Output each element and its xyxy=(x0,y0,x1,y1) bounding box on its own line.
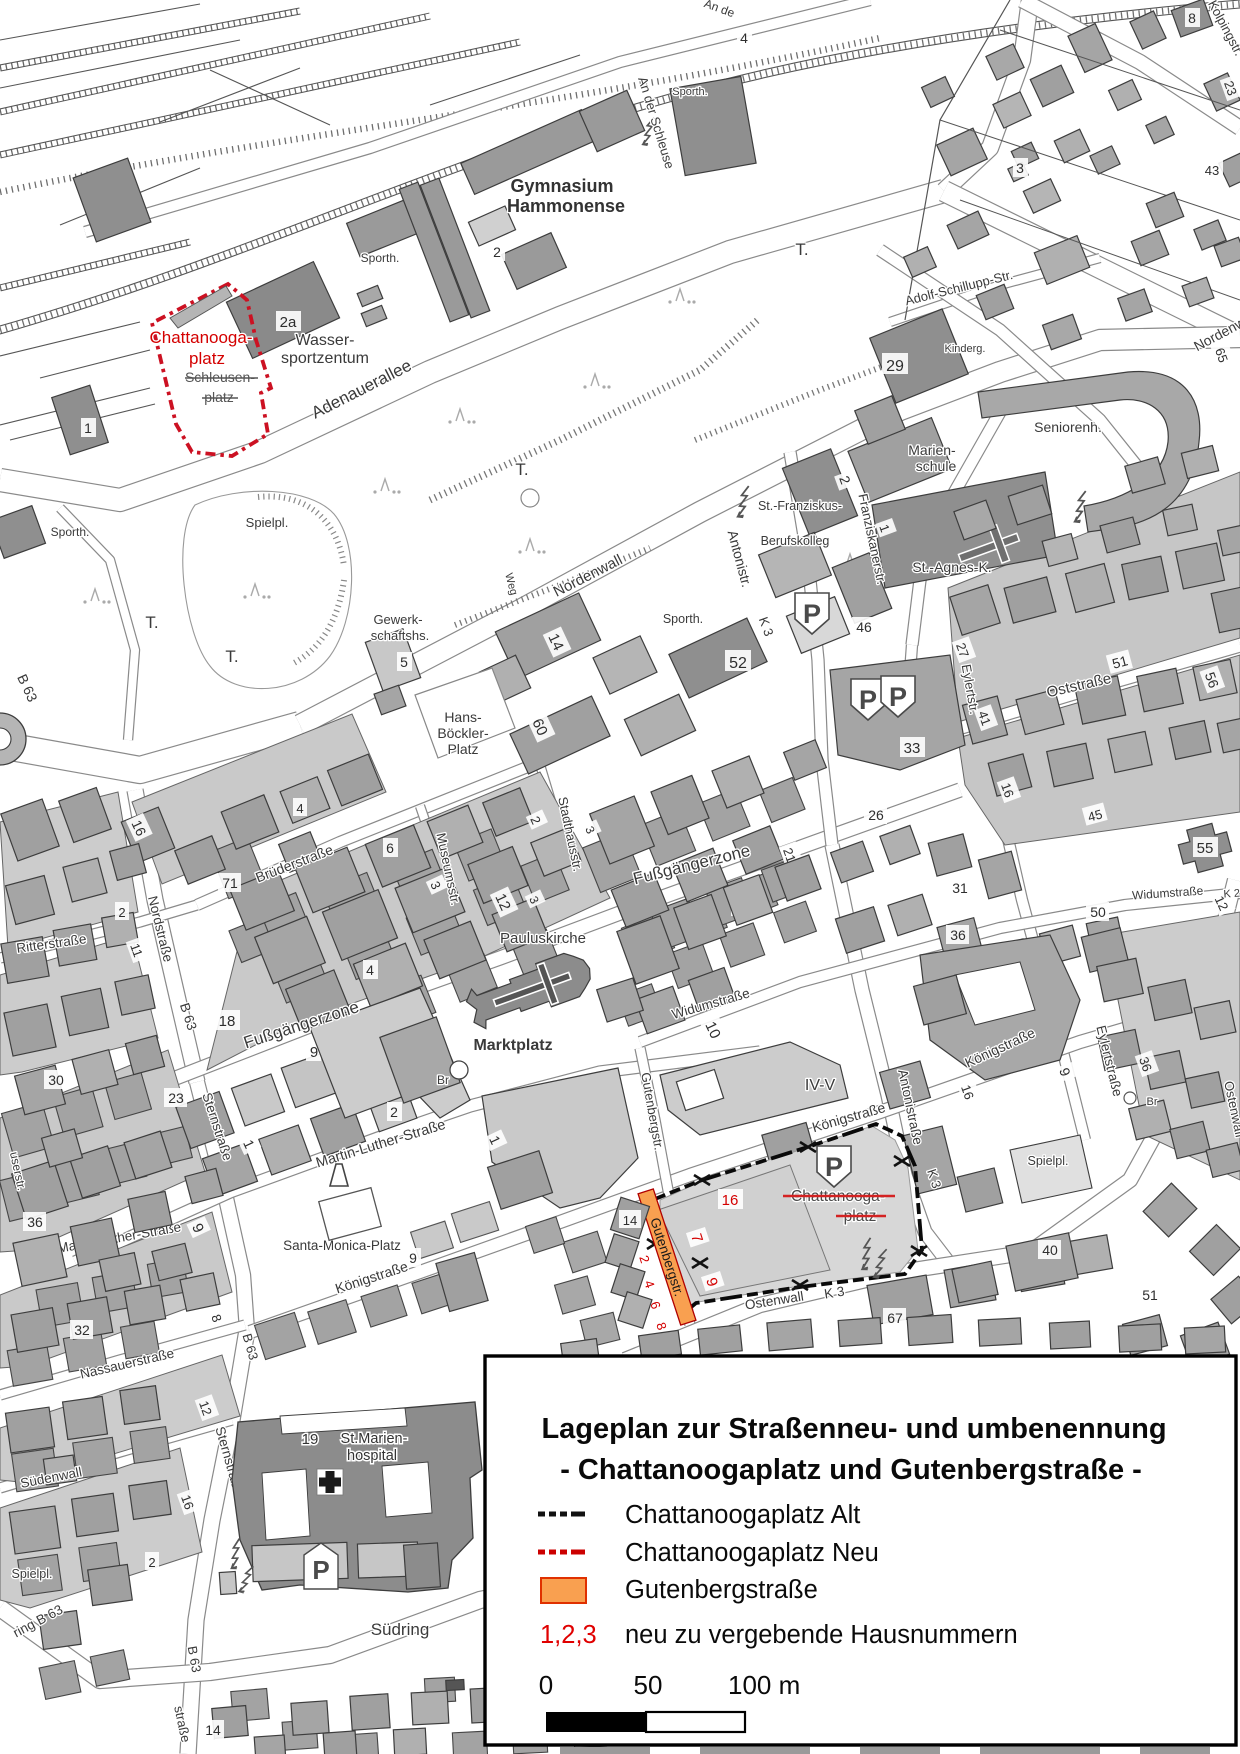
svg-text:52: 52 xyxy=(729,655,747,672)
svg-text:4: 4 xyxy=(366,962,374,978)
svg-text:67: 67 xyxy=(887,1310,903,1326)
svg-text:16: 16 xyxy=(722,1192,739,1209)
svg-text:50: 50 xyxy=(1090,904,1106,920)
svg-text:schaftshs.: schaftshs. xyxy=(371,628,430,643)
svg-text:2: 2 xyxy=(118,905,125,920)
svg-text:31: 31 xyxy=(952,880,968,896)
svg-text:K 3: K 3 xyxy=(823,1284,845,1302)
svg-text:T.: T. xyxy=(225,647,238,666)
svg-text:2a: 2a xyxy=(280,314,297,331)
svg-text:51: 51 xyxy=(1142,1287,1158,1303)
svg-text:9: 9 xyxy=(409,1250,417,1266)
svg-text:30: 30 xyxy=(48,1072,64,1088)
svg-text:P: P xyxy=(803,599,821,629)
svg-text:Seniorenh.: Seniorenh. xyxy=(1034,419,1102,435)
svg-text:1,2,3: 1,2,3 xyxy=(540,1621,597,1649)
svg-text:32: 32 xyxy=(74,1322,90,1338)
svg-text:neu zu vergebende Hausnummern: neu zu vergebende Hausnummern xyxy=(625,1621,1018,1649)
svg-text:4: 4 xyxy=(740,30,748,46)
svg-text:Br: Br xyxy=(437,1073,449,1087)
svg-text:IV-V: IV-V xyxy=(805,1077,836,1094)
svg-text:- Chattanoogaplatz und Gutenbe: - Chattanoogaplatz und Gutenbergstraße - xyxy=(560,1454,1142,1486)
svg-text:Lageplan zur Straßenneu- und u: Lageplan zur Straßenneu- und umbenennung xyxy=(541,1413,1166,1445)
svg-text:Spielpl.: Spielpl. xyxy=(12,1567,53,1581)
svg-text:P: P xyxy=(859,685,877,715)
svg-text:Sporth.: Sporth. xyxy=(51,525,90,539)
svg-text:4: 4 xyxy=(296,801,303,816)
svg-text:Spielpl.: Spielpl. xyxy=(246,515,289,530)
svg-text:2: 2 xyxy=(148,1555,155,1570)
svg-text:sportzentum: sportzentum xyxy=(281,350,369,367)
svg-text:71: 71 xyxy=(222,875,238,891)
svg-text:St.-Franziskus-: St.-Franziskus- xyxy=(758,499,842,513)
svg-text:schule: schule xyxy=(916,458,957,474)
svg-text:hospital: hospital xyxy=(347,1448,397,1464)
svg-text:50: 50 xyxy=(634,1670,663,1700)
svg-text:Chattanoogaplatz Alt: Chattanoogaplatz Alt xyxy=(625,1501,860,1529)
svg-text:2: 2 xyxy=(390,1104,398,1120)
svg-text:Südring: Südring xyxy=(371,1620,430,1639)
svg-text:Schleusen-: Schleusen- xyxy=(185,369,255,385)
svg-text:5: 5 xyxy=(400,654,408,670)
svg-text:Wasser-: Wasser- xyxy=(296,332,355,349)
svg-text:Chattanoogaplatz Neu: Chattanoogaplatz Neu xyxy=(625,1539,879,1567)
svg-text:St.Marien-: St.Marien- xyxy=(341,1431,408,1447)
svg-text:Gutenbergstraße: Gutenbergstraße xyxy=(625,1576,818,1604)
svg-text:6: 6 xyxy=(386,840,394,856)
svg-text:Chattanooga-: Chattanooga- xyxy=(149,328,252,347)
svg-text:36: 36 xyxy=(950,927,966,943)
svg-text:K 2: K 2 xyxy=(1223,887,1240,900)
svg-text:19: 19 xyxy=(302,1431,319,1448)
svg-text:100 m: 100 m xyxy=(728,1670,800,1700)
svg-text:Hammonense: Hammonense xyxy=(507,196,625,216)
svg-text:Pauluskirche: Pauluskirche xyxy=(500,930,586,947)
svg-text:Gymnasium: Gymnasium xyxy=(510,176,613,196)
svg-text:P: P xyxy=(312,1555,329,1585)
svg-text:55: 55 xyxy=(1197,840,1214,857)
svg-text:platz: platz xyxy=(189,349,225,368)
svg-text:Marien-: Marien- xyxy=(908,442,956,458)
svg-text:St.-Agnes-K.: St.-Agnes-K. xyxy=(912,559,991,575)
svg-text:46: 46 xyxy=(856,619,872,635)
svg-text:1: 1 xyxy=(84,420,92,436)
svg-text:Gewerk-: Gewerk- xyxy=(373,612,422,627)
svg-text:2: 2 xyxy=(493,244,501,260)
svg-text:Br: Br xyxy=(1147,1096,1158,1108)
svg-text:18: 18 xyxy=(219,1013,236,1030)
svg-text:Platz: Platz xyxy=(447,741,478,757)
svg-text:0: 0 xyxy=(539,1670,553,1700)
svg-text:P: P xyxy=(825,1152,843,1182)
svg-text:3: 3 xyxy=(1016,160,1024,176)
svg-text:Marktplatz: Marktplatz xyxy=(473,1037,552,1054)
svg-text:Berufskolleg: Berufskolleg xyxy=(761,534,830,548)
svg-text:23: 23 xyxy=(168,1090,184,1106)
svg-text:Spielpl.: Spielpl. xyxy=(1028,1154,1069,1168)
svg-text:8: 8 xyxy=(1188,10,1196,26)
svg-text:Sporth.: Sporth. xyxy=(663,612,703,626)
svg-text:Sporth.: Sporth. xyxy=(672,86,707,98)
svg-text:Kinderg.: Kinderg. xyxy=(945,343,986,355)
svg-text:40: 40 xyxy=(1042,1242,1058,1258)
svg-text:Böckler-: Böckler- xyxy=(437,725,489,741)
svg-text:T.: T. xyxy=(795,240,808,259)
svg-text:Hans-: Hans- xyxy=(444,709,482,725)
svg-text:T.: T. xyxy=(515,460,528,479)
svg-text:14: 14 xyxy=(205,1722,221,1738)
svg-text:43: 43 xyxy=(1205,163,1219,178)
svg-text:Santa-Monica-Platz: Santa-Monica-Platz xyxy=(283,1238,401,1253)
svg-text:platz: platz xyxy=(204,389,234,405)
svg-text:Sporth.: Sporth. xyxy=(361,251,400,265)
svg-text:36: 36 xyxy=(27,1214,43,1230)
svg-text:26: 26 xyxy=(868,807,884,823)
svg-text:P: P xyxy=(889,682,907,712)
svg-text:33: 33 xyxy=(904,740,921,757)
svg-text:14: 14 xyxy=(623,1213,637,1228)
svg-text:T.: T. xyxy=(145,613,158,632)
svg-text:29: 29 xyxy=(886,358,904,375)
